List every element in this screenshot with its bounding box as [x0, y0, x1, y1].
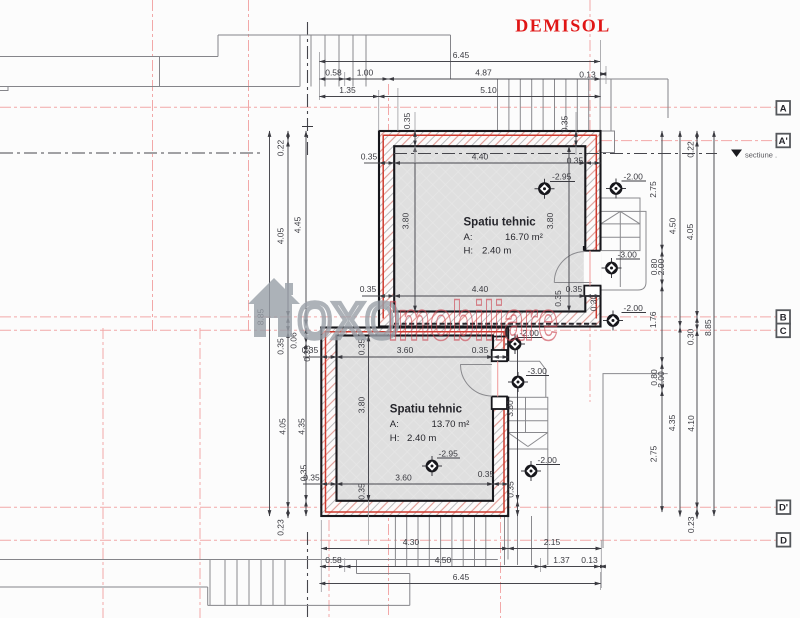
svg-text:4.30: 4.30: [403, 537, 420, 547]
svg-text:3.80: 3.80: [505, 400, 515, 417]
svg-text:4.45: 4.45: [293, 216, 303, 233]
svg-text:0.58: 0.58: [325, 68, 342, 78]
svg-text:6.45: 6.45: [453, 50, 470, 60]
svg-text:Spatiu tehnic: Spatiu tehnic: [390, 404, 463, 416]
svg-text:2.00: 2.00: [656, 258, 666, 275]
svg-text:D: D: [780, 535, 787, 546]
svg-text:2.00: 2.00: [656, 371, 666, 388]
svg-text:A: A: [780, 103, 787, 114]
svg-text:1.37: 1.37: [553, 555, 570, 565]
svg-text:4.10: 4.10: [686, 415, 696, 432]
svg-text:0.35: 0.35: [361, 152, 378, 162]
svg-text:-2.00: -2.00: [538, 455, 558, 465]
svg-text:0.23: 0.23: [686, 516, 696, 533]
svg-text:1.00: 1.00: [357, 68, 374, 78]
svg-text:0.23: 0.23: [276, 519, 286, 536]
svg-text:3.80: 3.80: [357, 396, 367, 413]
svg-text:6.45: 6.45: [453, 572, 470, 582]
svg-text:3.60: 3.60: [395, 473, 412, 483]
svg-text:B: B: [780, 313, 787, 324]
svg-text:Imobiliare: Imobiliare: [388, 289, 558, 352]
svg-text:5.10: 5.10: [480, 85, 497, 95]
svg-text:0.35: 0.35: [357, 483, 367, 500]
svg-text:0.35: 0.35: [299, 464, 309, 481]
svg-text:-2.00: -2.00: [624, 303, 644, 313]
svg-text:-2.95: -2.95: [439, 449, 459, 459]
svg-text:sectiune .: sectiune .: [745, 151, 777, 160]
svg-text:3.80: 3.80: [401, 212, 411, 229]
svg-text:4.05: 4.05: [276, 227, 286, 244]
svg-text:4.87: 4.87: [475, 68, 492, 78]
svg-text:2.15: 2.15: [544, 537, 561, 547]
svg-text:16.70 m²: 16.70 m²: [505, 232, 544, 243]
svg-text:A:: A:: [464, 232, 473, 243]
svg-text:Spatiu tehnic: Spatiu tehnic: [464, 217, 537, 229]
svg-text:4.50: 4.50: [435, 555, 452, 565]
svg-text:4.35: 4.35: [297, 418, 307, 435]
svg-text:-2.00: -2.00: [624, 172, 644, 182]
svg-text:0.35: 0.35: [402, 112, 412, 129]
svg-text:0.30: 0.30: [589, 294, 599, 311]
svg-text:2.75: 2.75: [648, 445, 658, 462]
svg-text:-2.95: -2.95: [552, 172, 572, 182]
svg-text:0.13: 0.13: [579, 70, 596, 80]
svg-text:DEMISOL: DEMISOL: [515, 16, 611, 36]
svg-text:2.40 m: 2.40 m: [407, 433, 436, 444]
svg-text:A': A': [779, 136, 788, 147]
svg-text:4.05: 4.05: [685, 223, 695, 240]
svg-text:0.35: 0.35: [566, 284, 583, 294]
svg-text:0.22: 0.22: [276, 139, 286, 156]
svg-text:0.35: 0.35: [478, 469, 495, 479]
svg-text:1.35: 1.35: [339, 85, 356, 95]
svg-text:oxo: oxo: [297, 278, 400, 352]
svg-text:0.13: 0.13: [581, 555, 598, 565]
svg-text:H:: H:: [390, 433, 400, 444]
svg-text:13.70 m²: 13.70 m²: [432, 419, 471, 430]
svg-text:0.35: 0.35: [276, 338, 286, 355]
svg-text:2.40 m: 2.40 m: [482, 246, 511, 257]
svg-text:0.22: 0.22: [686, 141, 696, 158]
svg-text:4.05: 4.05: [278, 418, 288, 435]
svg-text:0.35: 0.35: [560, 115, 570, 132]
svg-text:1.76: 1.76: [648, 311, 658, 328]
svg-text:8.85: 8.85: [703, 319, 713, 336]
svg-text:H:: H:: [464, 246, 474, 257]
svg-text:4.35: 4.35: [667, 414, 677, 431]
svg-text:0.35: 0.35: [506, 481, 516, 498]
svg-text:-3.00: -3.00: [618, 250, 638, 260]
svg-text:0.58: 0.58: [325, 555, 342, 565]
svg-text:3.80: 3.80: [545, 212, 555, 229]
svg-text:C: C: [780, 326, 787, 337]
svg-text:0.30: 0.30: [685, 328, 695, 345]
svg-text:-3.00: -3.00: [528, 366, 548, 376]
svg-text:D': D': [779, 503, 788, 514]
svg-text:2.75: 2.75: [648, 181, 658, 198]
svg-text:A:: A:: [390, 419, 399, 430]
svg-text:4.50: 4.50: [668, 217, 678, 234]
